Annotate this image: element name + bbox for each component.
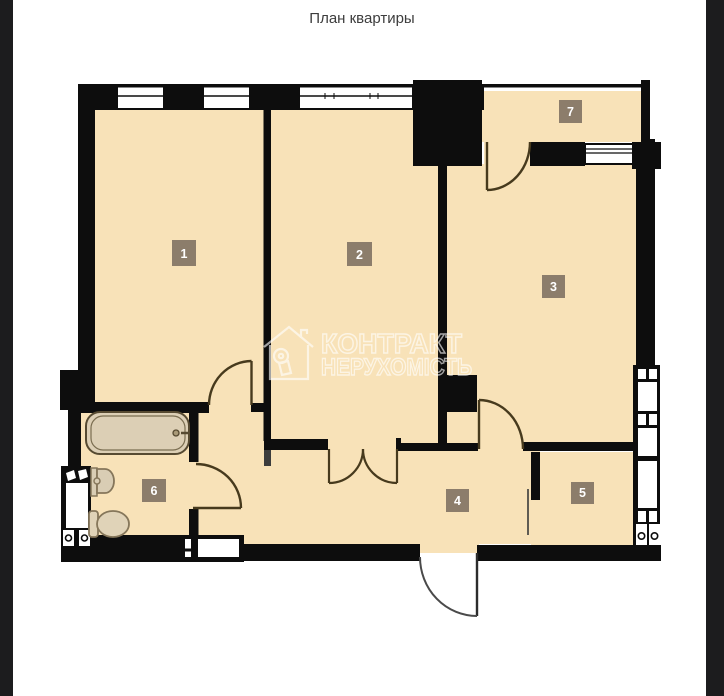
svg-text:НЕРУХОМІСТЬ: НЕРУХОМІСТЬ — [321, 354, 472, 381]
svg-text:6: 6 — [151, 484, 158, 498]
svg-text:3: 3 — [550, 280, 557, 294]
svg-text:4: 4 — [454, 494, 461, 508]
svg-text:1: 1 — [181, 247, 188, 261]
svg-text:7: 7 — [567, 105, 574, 119]
svg-text:5: 5 — [579, 486, 586, 500]
svg-text:2: 2 — [356, 248, 363, 262]
